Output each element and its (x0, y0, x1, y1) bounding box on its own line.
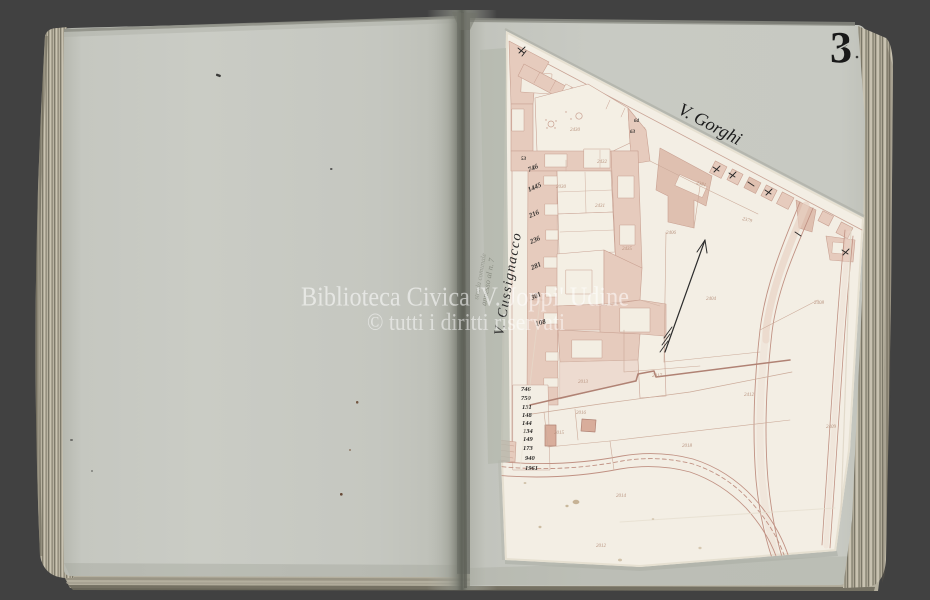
svg-text:2430: 2430 (570, 128, 581, 133)
svg-text:2406: 2406 (666, 231, 677, 236)
svg-text:2409: 2409 (826, 425, 837, 430)
svg-text:2404: 2404 (706, 297, 717, 302)
svg-text:53: 53 (521, 157, 527, 162)
svg-text:149: 149 (523, 436, 534, 443)
svg-text:2030: 2030 (556, 185, 567, 190)
svg-text:2013: 2013 (578, 380, 589, 385)
svg-text:2016: 2016 (576, 411, 587, 416)
svg-text:2435: 2435 (622, 247, 633, 252)
svg-text:173: 173 (523, 445, 534, 452)
svg-text:750: 750 (521, 395, 532, 402)
svg-text:148: 148 (522, 412, 533, 419)
svg-text:2408: 2408 (814, 301, 825, 306)
svg-text:2014: 2014 (616, 494, 627, 499)
svg-text:2017: 2017 (652, 374, 663, 379)
svg-text:© tutti i diritti riservati: © tutti i diritti riservati (367, 310, 565, 336)
svg-text:1961: 1961 (525, 465, 538, 472)
svg-text:2431: 2431 (595, 204, 605, 209)
svg-text:940: 940 (525, 455, 536, 462)
svg-text:63: 63 (630, 130, 636, 135)
svg-text:2018: 2018 (682, 444, 693, 449)
svg-text:2012: 2012 (596, 544, 607, 549)
svg-text:64: 64 (634, 119, 640, 124)
svg-text:2412: 2412 (744, 393, 755, 398)
svg-text:2432: 2432 (597, 160, 608, 165)
svg-text:Biblioteca Civica 'V. Joppi' U: Biblioteca Civica 'V. Joppi' Udine (301, 282, 629, 312)
svg-text:2015: 2015 (554, 431, 565, 436)
svg-text:144: 144 (522, 420, 533, 427)
